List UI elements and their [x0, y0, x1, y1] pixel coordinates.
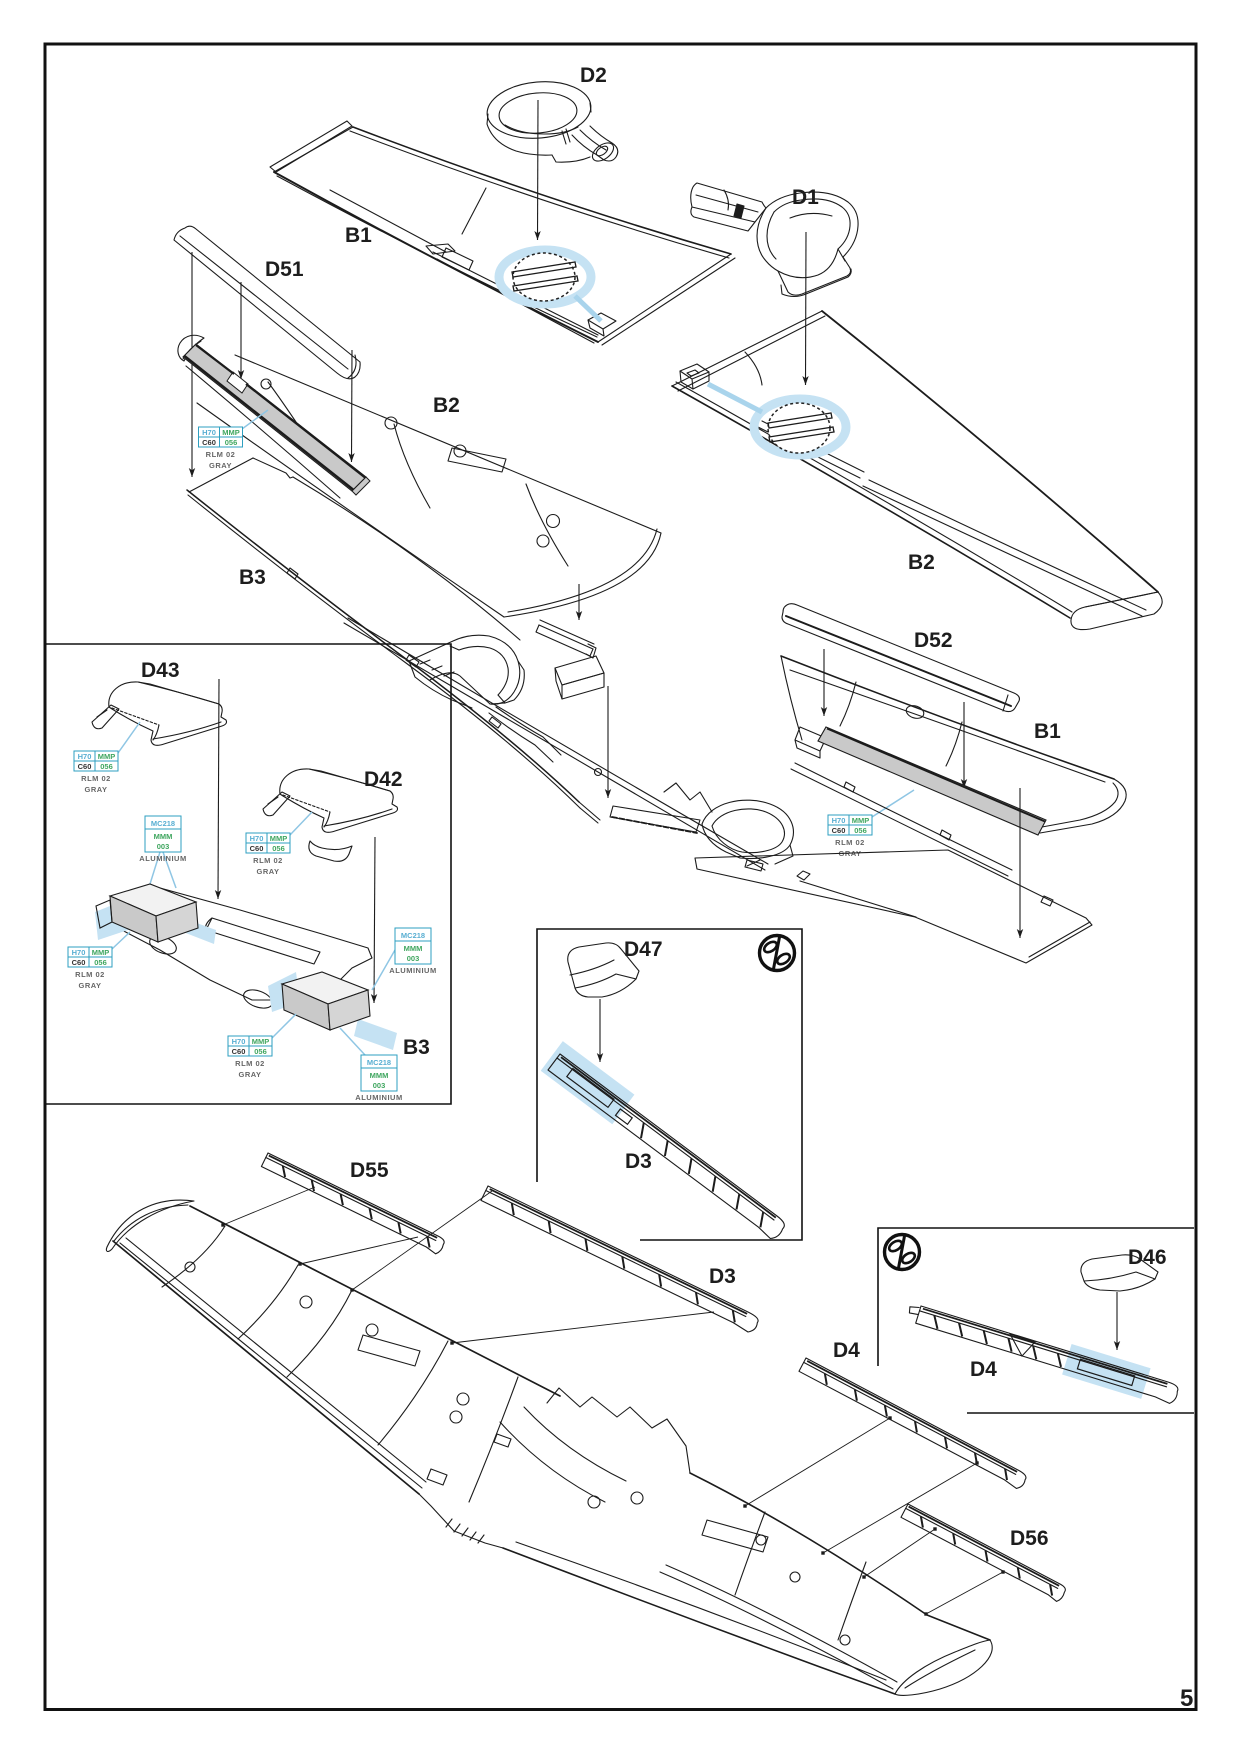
svg-text:056: 056 — [100, 762, 113, 771]
svg-text:MMP: MMP — [252, 1037, 270, 1046]
svg-text:B2: B2 — [908, 551, 935, 574]
svg-text:H70: H70 — [72, 948, 86, 957]
svg-text:MC218: MC218 — [401, 931, 425, 940]
svg-text:B2: B2 — [433, 394, 460, 417]
svg-text:ALUMINIUM: ALUMINIUM — [355, 1093, 402, 1102]
svg-text:D4: D4 — [970, 1358, 997, 1381]
svg-text:MMP: MMP — [98, 752, 116, 761]
svg-text:D1: D1 — [792, 186, 819, 209]
svg-text:GRAY: GRAY — [257, 867, 280, 876]
svg-text:ALUMINIUM: ALUMINIUM — [139, 854, 186, 863]
svg-text:D55: D55 — [350, 1159, 389, 1182]
svg-text:GRAY: GRAY — [209, 461, 232, 470]
svg-text:D3: D3 — [709, 1265, 736, 1288]
svg-text:MMP: MMP — [222, 428, 240, 437]
svg-text:B3: B3 — [239, 566, 266, 589]
svg-text:RLM 02: RLM 02 — [235, 1059, 265, 1068]
svg-text:003: 003 — [407, 954, 420, 963]
svg-text:MMM: MMM — [370, 1071, 389, 1080]
svg-text:C60: C60 — [232, 1047, 246, 1056]
svg-text:H70: H70 — [232, 1037, 246, 1046]
svg-text:MMM: MMM — [154, 832, 173, 841]
svg-text:B1: B1 — [1034, 720, 1061, 743]
svg-text:5: 5 — [1180, 1685, 1193, 1712]
svg-text:H70: H70 — [250, 834, 264, 843]
svg-text:D42: D42 — [364, 768, 403, 791]
svg-text:B1: B1 — [345, 224, 372, 247]
svg-text:H70: H70 — [832, 816, 846, 825]
svg-text:C60: C60 — [78, 762, 92, 771]
svg-text:D2: D2 — [580, 64, 607, 87]
svg-text:MMM: MMM — [404, 944, 423, 953]
svg-text:H70: H70 — [78, 752, 92, 761]
svg-text:B3: B3 — [403, 1036, 430, 1059]
svg-text:056: 056 — [854, 826, 867, 835]
svg-text:MC218: MC218 — [151, 819, 175, 828]
svg-text:D3: D3 — [625, 1150, 652, 1173]
svg-text:C60: C60 — [72, 958, 86, 967]
svg-text:056: 056 — [272, 844, 285, 853]
svg-text:D51: D51 — [265, 258, 304, 281]
svg-text:GRAY: GRAY — [79, 981, 102, 990]
svg-text:H70: H70 — [202, 428, 216, 437]
svg-text:RLM 02: RLM 02 — [75, 970, 105, 979]
svg-text:RLM 02: RLM 02 — [81, 774, 111, 783]
svg-text:GRAY: GRAY — [239, 1070, 262, 1079]
svg-text:ALUMINIUM: ALUMINIUM — [389, 966, 436, 975]
svg-text:D4: D4 — [833, 1339, 860, 1362]
svg-text:C60: C60 — [202, 438, 216, 447]
svg-text:D52: D52 — [914, 629, 953, 652]
svg-text:D56: D56 — [1010, 1527, 1049, 1550]
svg-text:056: 056 — [254, 1047, 267, 1056]
svg-text:C60: C60 — [832, 826, 846, 835]
svg-text:D43: D43 — [141, 659, 180, 682]
svg-text:D46: D46 — [1128, 1246, 1167, 1269]
svg-text:RLM 02: RLM 02 — [835, 838, 865, 847]
svg-text:003: 003 — [157, 842, 170, 851]
svg-text:003: 003 — [373, 1081, 386, 1090]
svg-text:056: 056 — [94, 958, 107, 967]
svg-text:GRAY: GRAY — [85, 785, 108, 794]
svg-text:MMP: MMP — [92, 948, 110, 957]
svg-text:MMP: MMP — [270, 834, 288, 843]
svg-text:RLM 02: RLM 02 — [253, 856, 283, 865]
svg-text:MC218: MC218 — [367, 1058, 391, 1067]
svg-text:C60: C60 — [250, 844, 264, 853]
svg-text:MMP: MMP — [852, 816, 870, 825]
svg-text:D47: D47 — [624, 938, 663, 961]
svg-text:056: 056 — [225, 438, 238, 447]
svg-text:RLM 02: RLM 02 — [206, 450, 236, 459]
